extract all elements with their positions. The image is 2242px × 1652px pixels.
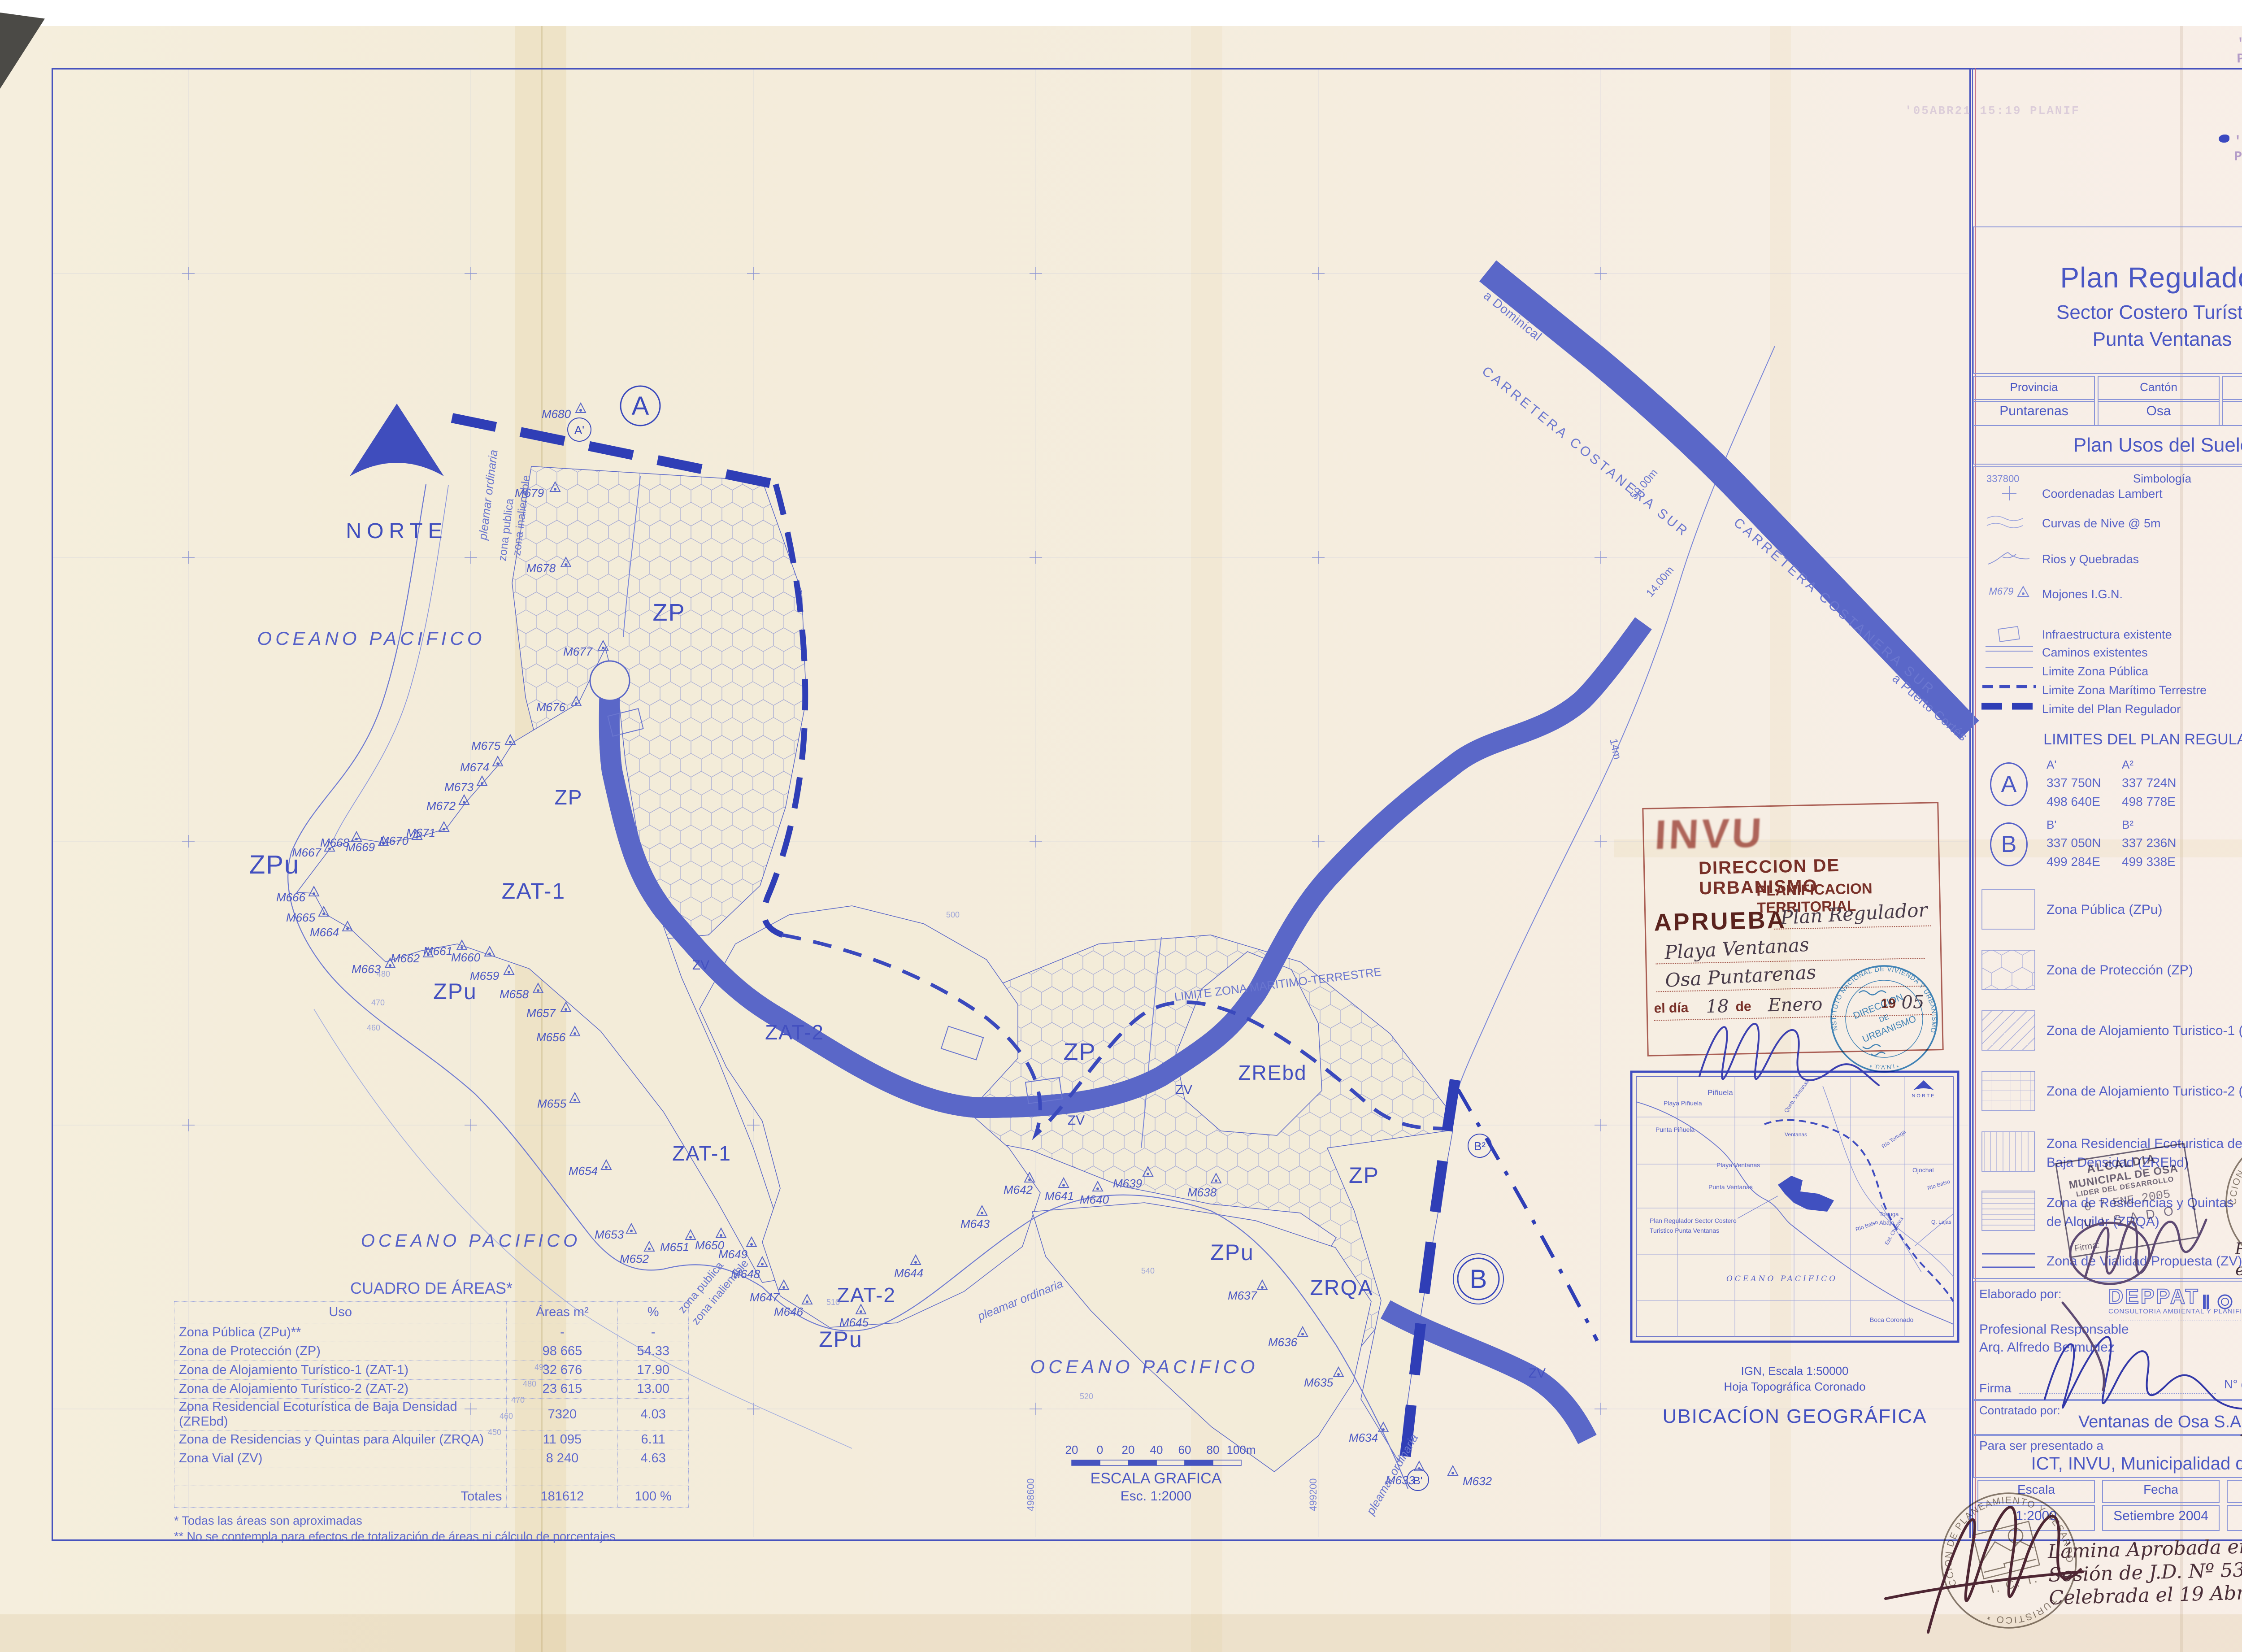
road-label: CARRETERA COSTANERA SUR [1731,515,1938,698]
mojon-label: M676 [536,700,566,714]
col-header-uso: Uso [174,1302,507,1323]
elaborado-box: Elaborado por: DEPPAT CONSULTORIA AMBIEN… [1973,1281,2242,1400]
limit-a-p1n: 337 750N [2046,776,2101,790]
legend-mojon-example: M679 [1989,586,2013,597]
mojon-label: M678 [526,561,556,575]
legend-label: Coordenadas Lambert [2042,487,2163,501]
zone-zrqa [1032,1203,1371,1472]
inset-ocean-label: OCEANO PACIFICO [1726,1274,1838,1283]
admin-header-distrito: Distrito [2222,376,2242,402]
lambert-cross [465,551,477,564]
grid-tick-label: 498600 [1025,1478,1036,1511]
deppat-logo: DEPPAT [2108,1284,2240,1311]
scale-bar: 20020406080100m ESCALA GRAFICA Esc. 1:20… [1065,1443,1256,1504]
mojon-label: M647 [750,1291,780,1304]
contour-label: 540 [1141,1266,1155,1275]
zone-label: ZPu [249,850,300,879]
lambert-cross [465,1119,477,1131]
fecha-value: Setiembre 2004 [2102,1505,2220,1531]
contour-label: 500 [946,910,960,919]
table-row: Zona de Protección (ZP)98 66554.33 [174,1342,689,1361]
registro-number: N° de Reg A-4043 [2224,1378,2242,1391]
de-label: de [1735,999,1751,1015]
presentado-label: Para ser presentado a [1979,1439,2103,1453]
zone-label: ZAT-2 [765,1021,824,1044]
limit-a-p2n: 337 724N [2122,776,2176,790]
mojon-label: M638 [1187,1186,1217,1199]
table-cell: Zona de Alojamiento Turístico-2 (ZAT-2) [174,1380,507,1399]
table-cell: 181612 [507,1486,618,1508]
lambert-cross [1595,835,1607,848]
lambert-cross [1595,267,1607,280]
mojon-label: M639 [1113,1177,1142,1190]
zv-label: ZV [1529,1366,1546,1381]
zone-label: ZRQA [1310,1276,1373,1300]
admin-value-canton: Osa [2098,399,2220,426]
aprueba-label: APRUEBA [1654,906,1786,936]
received-stamp-faint: '05ABR21 15:19 PLANIF [1905,104,2080,117]
ink-dot [2219,135,2229,143]
mojon-label: M641 [1045,1189,1074,1203]
zone-legend-zv: Zona de Vialidad Propuesta (ZV) [1974,1249,2242,1281]
zone-legend-label: Zona de Alojamiento Turistico-2 (ZAT-2) [2046,1084,2242,1099]
mojon-label: M654 [569,1164,598,1178]
mojon-label: M660 [451,951,481,964]
lambert-cross [182,267,195,280]
mojon-label: M635 [1304,1376,1334,1389]
table-cell: - [618,1323,689,1342]
limit-a-badge: A [1990,762,2028,806]
north-label: NORTE [346,519,448,543]
mojon-label: M677 [563,645,593,658]
lambert-cross [1030,267,1042,280]
table-row: Zona de Alojamiento Turístico-2 (ZAT-2)2… [174,1380,689,1399]
zone-label: ZP [1063,1039,1096,1065]
inset-label: Queb. Ventanas [1783,1078,1810,1114]
mojon-label: M632 [1463,1474,1492,1488]
table-cell: 98 665 [507,1342,618,1361]
table-cell: - [507,1323,618,1342]
table-cell [174,1468,507,1486]
mojon-label: M672 [426,799,456,813]
scalebar-segment [1128,1460,1156,1465]
limit-a-letter: A [632,391,649,421]
inset-title: UBICACÍON GEOGRÁFICA [1630,1405,1960,1428]
zone-label: ZAT-1 [502,878,565,904]
table-cell: 17.90 [618,1361,689,1380]
limit-b-p2n: 337 236N [2122,836,2176,850]
limit-b-p1e: 499 284E [2046,855,2100,869]
mojon-label: M640 [1080,1193,1109,1206]
mojon-label: M651 [660,1240,689,1254]
table-cell [507,1468,618,1486]
table-cell: 23 615 [507,1380,618,1399]
scalebar-segment [1213,1460,1241,1465]
inset-label: Abajo [1879,1219,1894,1226]
mojon-label: M642 [1004,1183,1033,1196]
mojon-label: M634 [1349,1431,1378,1444]
scalebar-caption: ESCALA GRAFICA [1091,1470,1222,1487]
limit-b-p2: B² [2122,818,2133,832]
zone-label: ZAT-2 [837,1283,896,1307]
zone-legend-label: Zona de Alojamiento Turistico-1 (ZAT-1) [2046,1023,2242,1039]
zv-label: ZV [692,958,709,973]
scalebar-tick: 60 [1178,1443,1191,1456]
legend-label: Mojones I.G.N. [2042,587,2123,601]
table-cell: 54.33 [618,1342,689,1361]
inset-label: Punta Ventanas [1708,1183,1753,1191]
mojon-label: M655 [537,1097,567,1110]
legend-label: Limite del Plan Regulador [2042,702,2181,716]
ocean-label: OCEANO PACIFICO [1030,1356,1259,1377]
mojon-label: M664 [310,926,339,939]
mojon-label: M673 [444,780,474,794]
scalebar-tick: 20 [1122,1443,1135,1456]
scalebar-tick: 80 [1207,1443,1220,1456]
map-annotation: pleamar ordinaria [476,449,500,541]
inset-label: Ventanas [1785,1131,1807,1138]
cuadro-table: Uso Áreas m² % Zona Pública (ZPu)**--Zon… [174,1301,689,1508]
mojon-label: M671 [406,826,435,839]
contour-label: 510 [826,1298,840,1307]
table-cell: Zona de Protección (ZP) [174,1342,507,1361]
zone-label: ZPu [433,979,477,1004]
lamina-note: Lámina Aprobada en Sesión de J.D. Nº 535… [2047,1534,2242,1610]
limit-a-p1e: 498 640E [2046,795,2100,809]
scalebar-segment [1185,1460,1213,1465]
grid-tick-label: 499200 [1308,1478,1319,1511]
legend-label: Limite Zona Marítimo Terrestre [2042,683,2207,697]
mojon-label: M652 [620,1252,649,1265]
dia-label: el día [1654,1000,1688,1017]
contour-label: 460 [367,1023,380,1032]
table-cell: 32 676 [507,1361,618,1380]
plan-usos-title: Plan Usos del Suelo [1974,434,2242,456]
inset-label: Ojochal [1912,1166,1934,1174]
sheet-title: Plan Regulador [1974,261,2242,294]
scalebar-segment [1156,1460,1185,1465]
col-header-pct: % [618,1302,689,1323]
inset-label: Plan Regulador Sector Costero [1650,1217,1737,1224]
limit-b-badge: B [1990,822,2028,866]
presentado-value: ICT, INVU, Municipalidad de Osa [1974,1454,2242,1474]
aprueba-handwritten-3: Osa Puntarenas [1664,961,1816,991]
mojon-label: M644 [894,1266,923,1280]
elaborado-label: Elaborado por: [1979,1287,2062,1301]
firma-label: Firma [1979,1381,2012,1396]
scalebar-tick: 100m [1226,1443,1256,1456]
zv-label: ZV [1175,1082,1192,1097]
received-stamp-mid: '05ABR21 15:19 PLANIF [2233,131,2242,165]
table-cell: 4.63 [618,1449,689,1468]
fecha-header: Fecha [2102,1480,2220,1503]
mes-handwritten: Enero [1768,994,1823,1016]
zone-legend-zat2: Zona de Alojamiento Turistico-2 (ZAT-2) [1974,1070,2242,1120]
table-cell: Totales [174,1486,507,1508]
contratado-value: Ventanas de Osa S.A. [1974,1413,2242,1432]
table-row: Zona Vial (ZV)8 2404.63 [174,1449,689,1468]
inset-label: Río Balso [1927,1178,1951,1191]
admin-value-distrito: Bahia Ballena [2222,399,2242,426]
mojon-label: M666 [276,891,306,904]
table-cell: 7320 [507,1399,618,1430]
mojon-label: M656 [536,1030,566,1044]
col-header-areas: Áreas m² [507,1302,618,1323]
svg-text:DE: DE [1878,1013,1890,1024]
lambert-cross [182,835,195,848]
zone-legend-label: Zona de Protección (ZP) [2046,963,2193,978]
table-cell: 11 095 [507,1430,618,1449]
scalebar-tick: 0 [1097,1443,1103,1456]
table-row: Zona de Alojamiento Turístico-1 (ZAT-1)3… [174,1361,689,1380]
lamina-header: Lámina [2227,1480,2242,1503]
legend-label: Caminos existentes [2042,646,2148,660]
inset-plan-area [1778,1176,1834,1212]
ocean-label: OCEANO PACIFICO [257,628,486,649]
zone-label: ZAT-1 [672,1142,731,1165]
inset-label: Tortuga [1879,1211,1899,1217]
contour-label: 480 [377,969,390,978]
scalebar-segment [1100,1460,1128,1465]
inset-label: Playa Piñuela [1664,1100,1702,1107]
zone-legend-zpu: Zona Pública (ZPu) [1974,889,2242,938]
mojon-label: M653 [595,1228,624,1241]
cuadro-title: CUADRO DE ÁREAS* [174,1279,689,1298]
zone-label: ZPu [819,1327,863,1352]
ocean-label: OCEANO PACIFICO [361,1231,581,1251]
titleblock-title-box: Plan Regulador Sector Costero Turístico … [1973,226,2242,374]
table-cell: 100 % [618,1486,689,1508]
svg-text:* I.N.V.U. *: * I.N.V.U. * [1869,1062,1899,1070]
limit-b-p2e: 499 338E [2122,855,2176,869]
mojon-label: M668 [320,836,350,849]
table-row: Zona Pública (ZPu)**-- [174,1323,689,1342]
lambert-cross [182,551,195,564]
gaceta-line: Para publicación [2235,1236,2242,1260]
presentado-box: Para ser presentado a ICT, INVU, Municip… [1973,1435,2242,1478]
mojon-label: M670 [379,834,409,848]
table-cell: 4.03 [618,1399,689,1430]
mojon-label: M643 [960,1217,990,1230]
table-cell: 13.00 [618,1380,689,1399]
invu-logo: INVU [1654,809,1765,859]
received-stamp-top: '05ABR21 15:18 PLANIF [2236,34,2242,67]
invu-round-stamp: INSTITUTO NACIONAL DE VIVIENDA Y URBANIS… [1826,961,1942,1077]
inset-caption-2: Hoja Topográfica Coronado [1630,1380,1960,1394]
inset-label: Punta Piñuela [1655,1126,1695,1133]
legend-label: Limite Zona Pública [2042,665,2148,678]
table-row: Totales181612100 % [174,1486,689,1508]
inset-label: Turistico Punta Ventanas [1650,1227,1719,1234]
admin-header-provincia: Provincia [1973,376,2095,402]
admin-header-canton: Cantón [2098,376,2220,402]
ict-stamp-3 [2240,1321,2242,1464]
lambert-cross [1595,1403,1607,1415]
inset-label: Piñuela [1708,1088,1733,1097]
zone-label: ZPu [1210,1240,1254,1265]
inset-caption-1: IGN, Escala 1:50000 [1630,1364,1960,1378]
table-cell: Zona de Residencias y Quintas para Alqui… [174,1430,507,1449]
zone-legend-label: Zona Pública (ZPu) [2046,902,2162,917]
mojon-label: M675 [471,739,501,752]
inset-label: Río Balso [1855,1219,1879,1233]
table-cell: 8 240 [507,1449,618,1468]
contratado-box: Contratado por: Ventanas de Osa S.A. [1973,1400,2242,1435]
limits-heading: LIMITES DEL PLAN REGULADOR [1974,731,2242,748]
lambert-cross [1595,1119,1607,1131]
municipal-firma-label: Firma: [2074,1240,2101,1254]
municipal-stamp: ALCALDIA MUNICIPAL DE OSA LIDER DEL DESA… [2055,1143,2199,1258]
lambert-cross [1312,551,1325,564]
north-arrow: NORTE [346,404,448,543]
footnote-1: * Todas las áreas son aproximadas [174,1514,689,1528]
table-row: Zona de Residencias y Quintas para Alqui… [174,1430,689,1449]
lambert-cross [747,267,760,280]
road-label: 14.00m [1644,564,1676,600]
sheet-subtitle-2: Punta Ventanas [1974,328,2242,351]
lambert-cross [1312,835,1325,848]
scalebar-tick: 20 [1065,1443,1078,1456]
table-cell: Zona Vial (ZV) [174,1449,507,1468]
limits-a-row: A A' 337 750N 498 640E A² 337 724N 498 7… [1974,758,2242,814]
mojon-label: M650 [695,1239,725,1252]
limit-a-p2: A² [2122,758,2133,772]
mojon-label: M665 [286,911,316,924]
footnote-2: ** No se contempla para efectos de total… [174,1530,689,1543]
lambert-cross [1030,835,1042,848]
profesional-name: Arq. Alfredo Bermudez [1979,1340,2115,1355]
cuadro-areas: CUADRO DE ÁREAS* Uso Áreas m² % Zona Púb… [174,1279,689,1543]
zone-label: ZREbd [1238,1061,1307,1084]
legend-label: Rios y Quebradas [2042,552,2139,566]
profesional-label: Profesional Responsable [1979,1322,2129,1337]
contour-label: 470 [371,998,385,1007]
table-row [174,1468,689,1486]
sheet-subtitle-1: Sector Costero Turístico [1974,301,2242,324]
lambert-cross [1030,551,1042,564]
deppat-name: DEPPAT [2108,1285,2200,1308]
firma-line [2019,1393,2216,1394]
limit-a-p1: A' [2046,758,2056,772]
mojon-label: M636 [1268,1335,1298,1349]
limit-b-p1n: 337 050N [2046,836,2101,850]
inset-map: NORTE OCEANO PACIFICO PiñuelaPlaya Piñue… [1630,1070,1960,1428]
contour-label: 520 [1080,1392,1093,1401]
mojon-label: M658 [500,987,529,1001]
table-cell: Zona Residencial Ecoturística de Baja De… [174,1399,507,1430]
limit-a-p2e: 498 778E [2122,795,2176,809]
table-cell: 6.11 [618,1430,689,1449]
inset-label: Río Tortuga [1881,1128,1907,1149]
lambert-cross [1312,267,1325,280]
dia-handwritten: 18 [1706,996,1729,1017]
legend-label: Infraestructura existente [2042,628,2172,642]
zone-label: ZP [652,599,685,626]
mojon-label: M646 [774,1305,804,1318]
lambert-cross [465,267,477,280]
inset-label: Playa Ventanas [1716,1161,1760,1169]
mojon-label: M680 [542,407,571,421]
limit-b2-letter: B² [1474,1139,1486,1153]
table-cell [618,1468,689,1486]
inset-north-arrow: NORTE [1912,1080,1935,1099]
inset-label: Boca Coronado [1870,1316,1914,1323]
scalebar-segment [1072,1460,1100,1465]
limit-a1-letter: A' [574,423,584,437]
mojon-label: M657 [526,1006,556,1020]
deppat-subtitle: CONSULTORIA AMBIENTAL Y PLANIFICACION FI… [2108,1308,2242,1315]
lambert-cross [182,1119,195,1131]
inset-label: Q. Lajas [1931,1219,1951,1225]
gaceta-line: en Gaceta. [2235,1257,2242,1281]
scalebar-scale: Esc. 1:2000 [1121,1489,1191,1504]
mojon-label: M669 [346,840,375,854]
zone-legend-zat1: Zona de Alojamiento Turistico-1 (ZAT-1) [1974,1010,2242,1059]
lambert-cross [1030,1403,1042,1415]
mojon-label: M674 [460,761,489,774]
table-row: Zona Residencial Ecoturística de Baja De… [174,1399,689,1430]
zone-label: ZP [555,786,583,809]
scalebar-tick: 40 [1150,1443,1163,1456]
mojon-label: M637 [1228,1289,1258,1302]
legend-label: Curvas de Nive @ 5m [2042,517,2161,530]
lambert-cross [747,1119,760,1131]
zone-label: ZP [1349,1163,1379,1188]
gaceta-note: Para publicación en Gaceta. 12 - 01 - 20… [2235,1236,2242,1302]
table-cell: Zona Pública (ZPu)** [174,1323,507,1342]
zv-label: ZV [1068,1113,1085,1128]
mojon-label: M662 [391,952,420,965]
admin-value-provincia: Puntarenas [1973,399,2095,426]
road-label: CARRETERA COSTANERA SUR [1479,364,1692,540]
lambert-cross [1595,551,1607,564]
svg-text:NORTE: NORTE [1912,1093,1935,1099]
map-annotation: pleamar ordinaria [975,1277,1065,1323]
inset-svg: NORTE OCEANO PACIFICO PiñuelaPlaya Piñue… [1630,1070,1960,1343]
table-cell: Zona de Alojamiento Turístico-1 (ZAT-1) [174,1361,507,1380]
lamina-value: 19 [2227,1505,2242,1531]
plan-usos-box: Plan Usos del Suelo [1973,425,2242,465]
aprueba-handwritten-2: Playa Ventanas [1664,934,1810,964]
limit-b-letter: B [1470,1265,1487,1294]
limit-b-p1: B' [2046,818,2056,832]
zone-legend-zp: Zona de Protección (ZP) [1974,949,2242,999]
limits-b-row: B B' 337 050N 499 284E B² 337 236N 499 3… [1974,818,2242,874]
